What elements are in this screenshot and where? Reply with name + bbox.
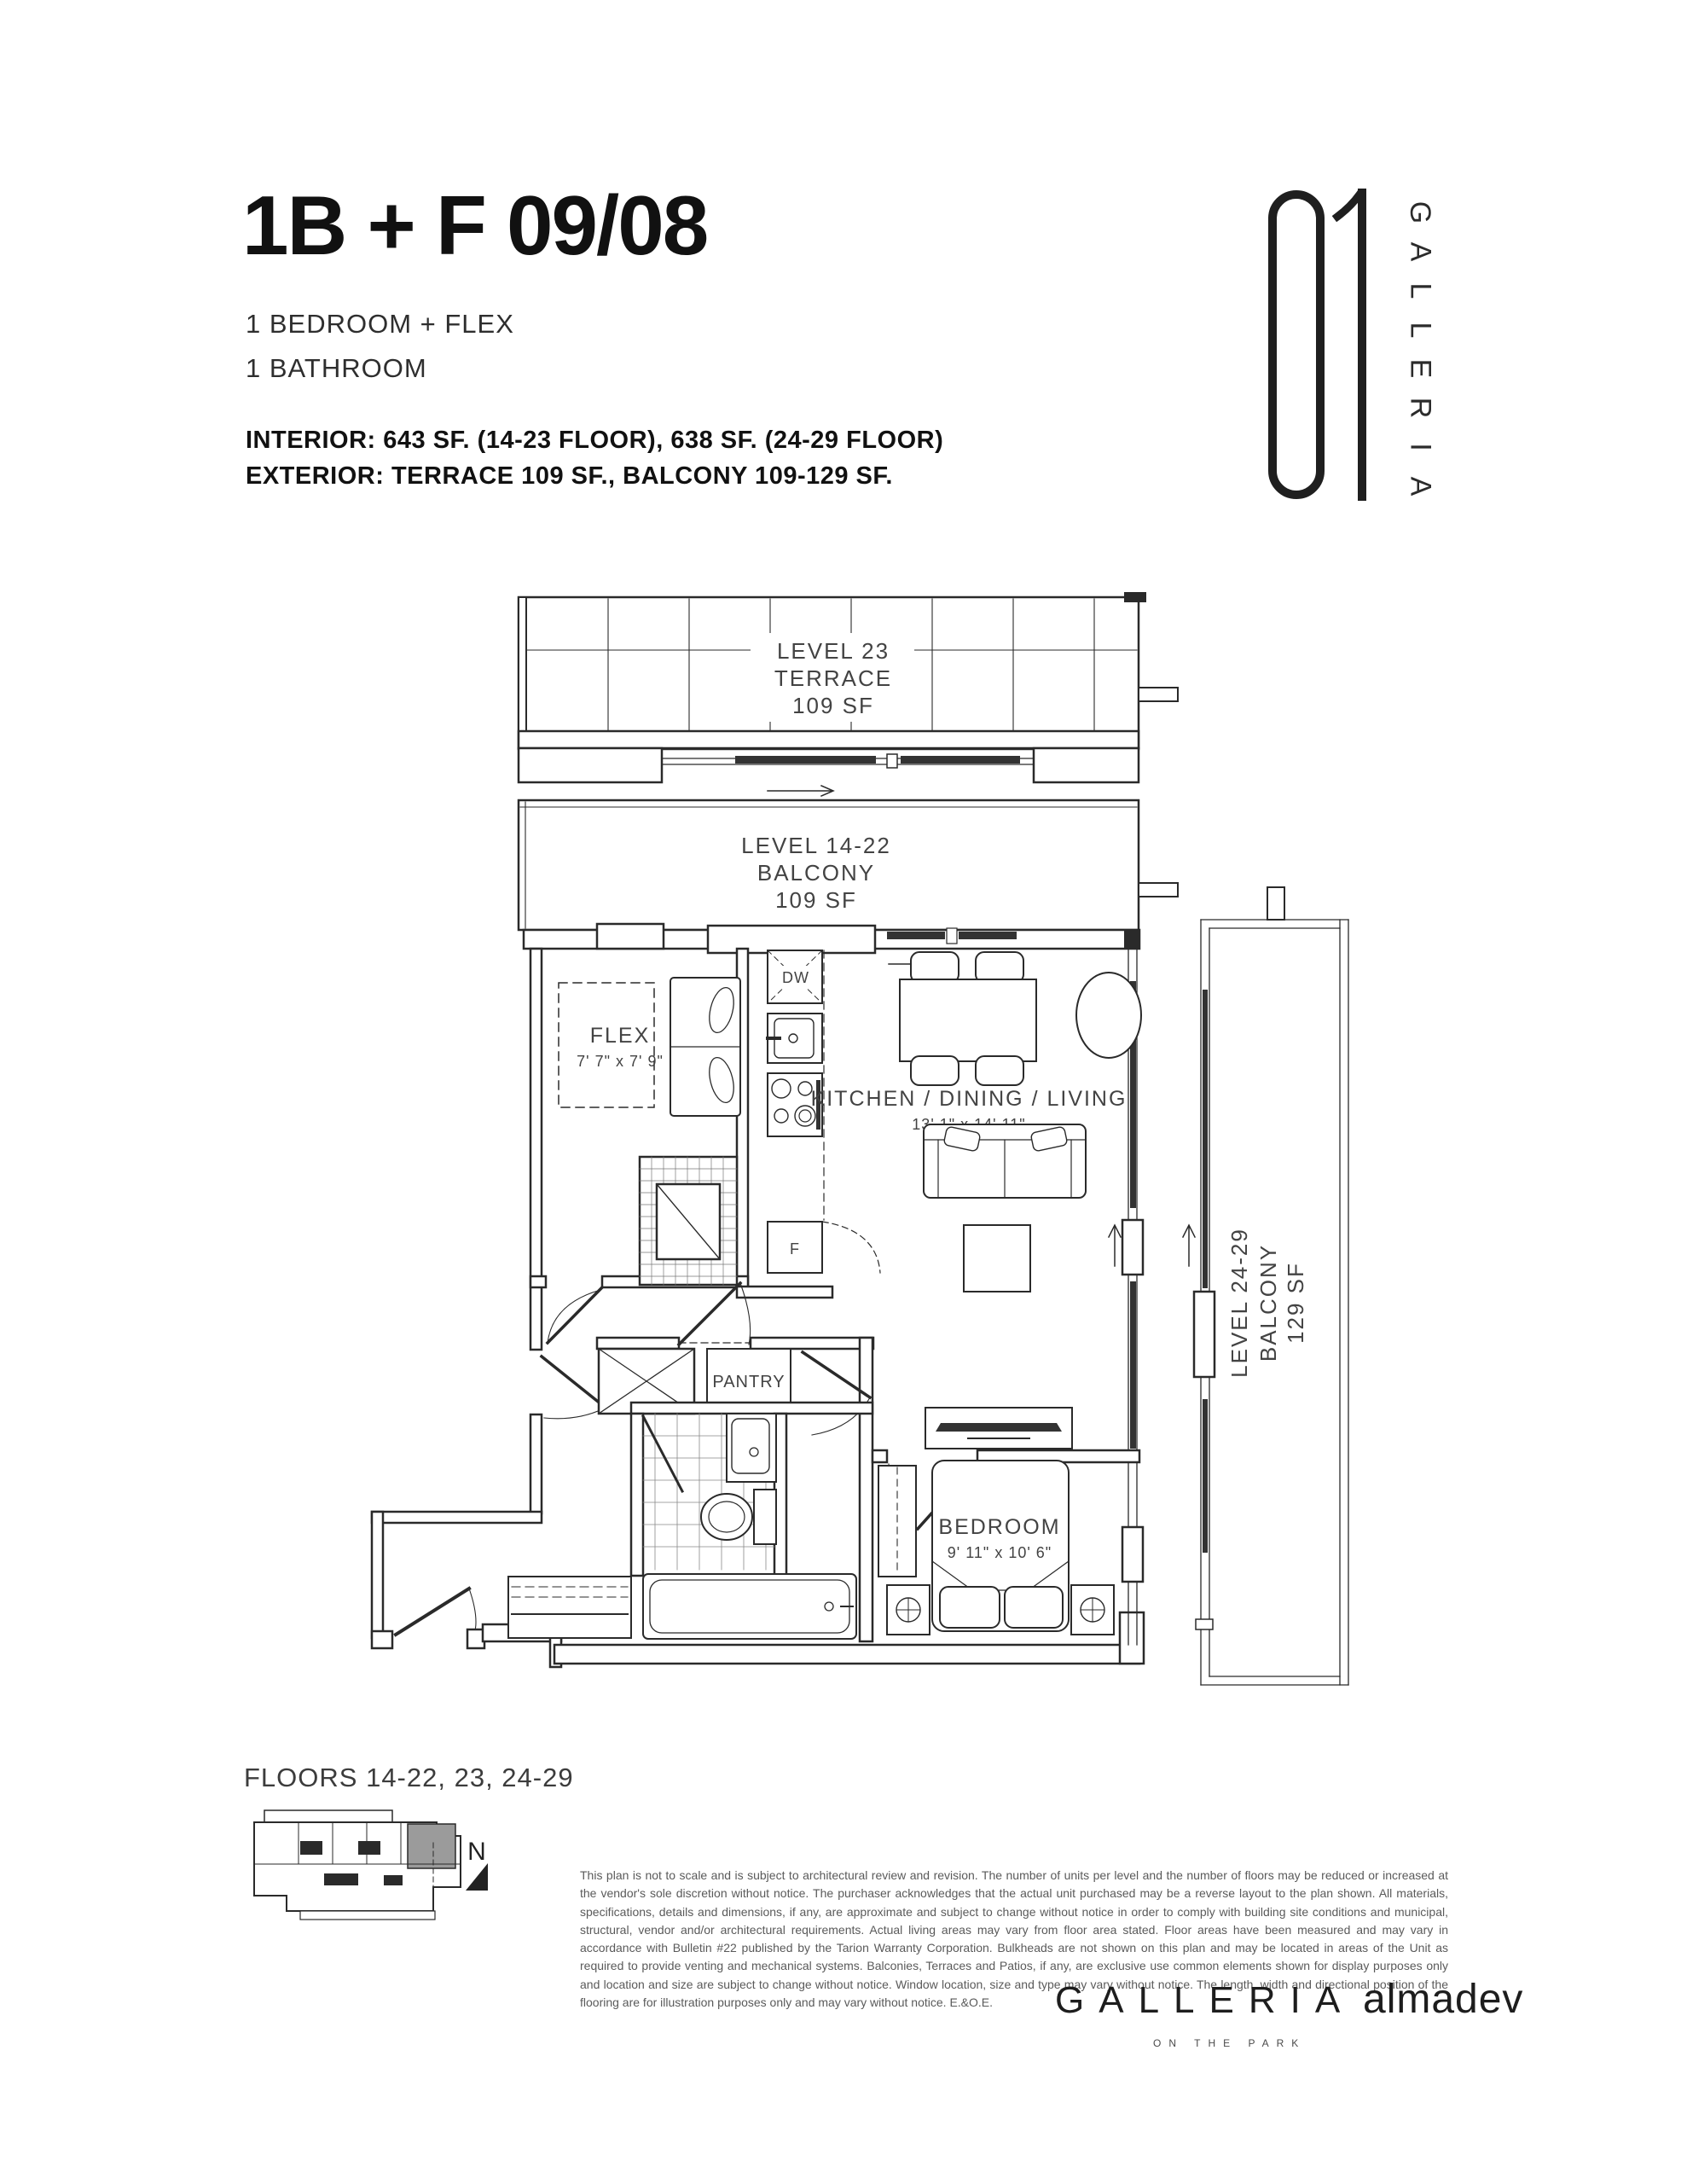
svg-text:FLEX: FLEX xyxy=(590,1024,651,1048)
svg-text:PANTRY: PANTRY xyxy=(712,1373,785,1391)
bathtub xyxy=(643,1574,856,1639)
entry-door xyxy=(396,1589,476,1635)
svg-text:BALCONY: BALCONY xyxy=(757,860,875,886)
svg-text:LEVEL 14-22: LEVEL 14-22 xyxy=(741,833,891,858)
side-balcony: LEVEL 24-29 BALCONY 129 SF xyxy=(1183,887,1348,1685)
svg-text:KITCHEN / DINING / LIVING: KITCHEN / DINING / LIVING xyxy=(811,1087,1128,1111)
coffee-table xyxy=(964,1225,1030,1292)
slider-arrow-terrace xyxy=(768,786,833,796)
dishwasher: DW xyxy=(768,950,822,1003)
north-arrow: N xyxy=(466,1838,488,1891)
flex-label: FLEX 7' 7" x 7' 9" xyxy=(577,1024,664,1070)
slider-arrow-right-1 xyxy=(1109,1225,1121,1266)
key-plan: N xyxy=(254,1810,488,1920)
brand-galleria: GALLERIA xyxy=(1055,1979,1354,2022)
key-plan-unit-highlight xyxy=(408,1824,455,1868)
tv-console xyxy=(925,1408,1072,1449)
interior-spec: INTERIOR: 643 SF. (14-23 FLOOR), 638 SF.… xyxy=(246,427,943,455)
svg-text:109 SF: 109 SF xyxy=(792,693,874,718)
svg-text:N: N xyxy=(467,1838,488,1866)
svg-text:DW: DW xyxy=(782,969,809,986)
floorplan-sheet: LEVEL 23 TERRACE 109 SF LEVEL 14-22 BALC… xyxy=(0,0,1687,2184)
entry-closet xyxy=(508,1577,631,1638)
bedroom: BEDROOM 9' 11" x 10' 6" xyxy=(872,1450,1139,1635)
logo-letter: I xyxy=(1403,443,1436,451)
logo-galleria-vertical: G A L L E R I A xyxy=(1390,196,1450,503)
logo-letter: L xyxy=(1403,322,1436,339)
svg-text:LEVEL 24-29: LEVEL 24-29 xyxy=(1226,1228,1252,1378)
svg-text:109 SF: 109 SF xyxy=(775,887,857,913)
side-balcony-label: LEVEL 24-29 BALCONY 129 SF xyxy=(1226,1228,1308,1378)
svg-text:BALCONY: BALCONY xyxy=(1255,1244,1281,1362)
wardrobe xyxy=(878,1466,916,1577)
svg-text:9' 11" x 10' 6": 9' 11" x 10' 6" xyxy=(948,1544,1052,1561)
plant xyxy=(1076,973,1141,1058)
svg-text:F: F xyxy=(790,1240,800,1258)
exterior-spec: EXTERIOR: TERRACE 109 SF., BALCONY 109-1… xyxy=(246,462,893,491)
floors-label: FLOORS 14-22, 23, 24-29 xyxy=(244,1763,574,1793)
svg-text:TERRACE: TERRACE xyxy=(774,665,892,691)
bedroom-label: BEDROOM 9' 11" x 10' 6" xyxy=(938,1515,1060,1561)
logo-letter: A xyxy=(1404,242,1437,263)
logo-letter: E xyxy=(1404,359,1437,380)
nightstand-left xyxy=(887,1585,930,1635)
dining-table xyxy=(900,979,1036,1061)
svg-text:129 SF: 129 SF xyxy=(1283,1262,1308,1344)
kitchen-sink xyxy=(768,1014,822,1063)
shaft-hatched xyxy=(640,1157,737,1285)
plan-code-title: 1B + F 09/08 xyxy=(242,177,707,274)
terrace-area: LEVEL 23 TERRACE 109 SF xyxy=(519,592,1178,796)
fridge: F xyxy=(768,1222,880,1273)
brand-almadev: almadev xyxy=(1363,1976,1523,2023)
flex-daybed xyxy=(670,978,740,1116)
bathroom xyxy=(631,1403,872,1639)
kitchen: DW F xyxy=(737,950,880,1298)
toilet xyxy=(701,1490,776,1544)
svg-text:LEVEL 23: LEVEL 23 xyxy=(777,638,890,664)
logo-letter: L xyxy=(1403,282,1436,299)
config-line-bedroom: 1 BEDROOM + FLEX xyxy=(246,309,514,340)
logo-letter: A xyxy=(1404,477,1437,497)
brand-tagline: ON THE PARK xyxy=(1153,2037,1306,2049)
logo-01-mark xyxy=(1272,193,1362,497)
nightstand-right xyxy=(1071,1585,1114,1635)
logo-letter: G xyxy=(1403,201,1436,224)
svg-text:BEDROOM: BEDROOM xyxy=(938,1515,1060,1539)
flex-room: FLEX 7' 7" x 7' 9" xyxy=(530,949,748,1343)
slider-arrow-right-2 xyxy=(1183,1225,1195,1266)
balcony-area: LEVEL 14-22 BALCONY 109 SF xyxy=(519,800,1178,930)
config-line-bathroom: 1 BATHROOM xyxy=(246,353,427,384)
svg-text:7' 7" x 7' 9": 7' 7" x 7' 9" xyxy=(577,1053,664,1070)
logo-letter: R xyxy=(1404,398,1437,420)
sofa xyxy=(924,1124,1086,1198)
vanity-sink xyxy=(727,1414,776,1482)
